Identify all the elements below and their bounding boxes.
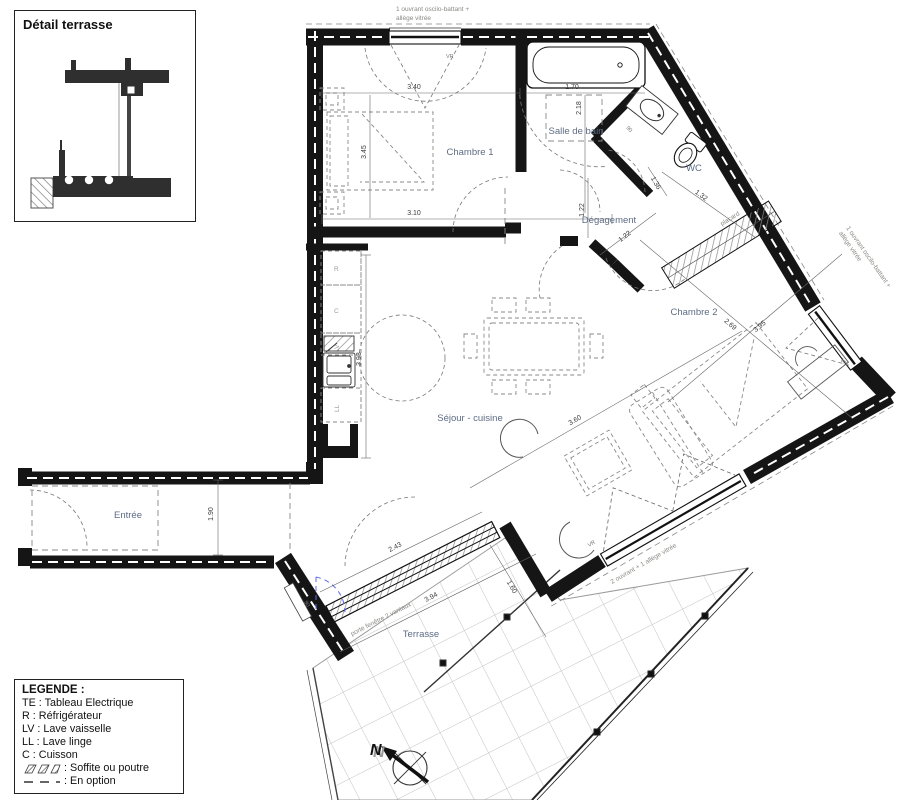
annotation-top-1: 1 ouvrant oscilo-battant + — [396, 6, 469, 13]
room-label-degagement: Dégagement — [582, 215, 637, 226]
window-sejour: VR — [575, 430, 746, 566]
dim-wc-door: 90 — [625, 125, 634, 134]
vr-label-top: VR — [446, 54, 454, 60]
room-label-chambre1: Chambre 1 — [447, 147, 494, 158]
legend-soffite-label: : Soffite ou poutre — [64, 762, 149, 775]
annotation-top-2: allège vitrée — [396, 15, 431, 22]
appliance-label-c: C — [334, 308, 339, 315]
dim-sejour-d: 3.60 — [568, 414, 583, 427]
room-label-wc: WC — [686, 163, 702, 174]
terrace-detail-drawing — [15, 32, 195, 214]
dim-bath-width: 1.70 — [565, 84, 579, 91]
room-label-sejour: Séjour - cuisine — [437, 413, 502, 424]
appliance-label-ll: LL — [334, 404, 341, 412]
placard-closet: placard — [662, 201, 782, 288]
legend-item-ll: LL : Lave linge — [22, 736, 177, 749]
legend-item-option: : En option — [22, 775, 177, 788]
kitchen-sink — [323, 336, 355, 387]
legend-item-soffite: : Soffite ou poutre — [22, 762, 177, 775]
sofa — [627, 385, 715, 490]
inset-title: Détail terrasse — [15, 11, 195, 32]
furniture — [320, 88, 808, 496]
legend-option-label: : En option — [64, 775, 116, 788]
legend-item-te: TE : Tableau Electrique — [22, 697, 177, 710]
legend-item-lv: LV : Lave vaisselle — [22, 723, 177, 736]
roof-overhang-lines — [306, 24, 893, 608]
armchair-1 — [500, 419, 538, 457]
coffee-table — [564, 430, 632, 496]
room-label-entree: Entrée — [114, 510, 142, 521]
vr-label-sejour: VR — [587, 540, 597, 549]
room-label-sdb: Salle de bain — [549, 126, 604, 137]
chambre1-door-arc — [453, 177, 508, 232]
dim-entree-h: 1.90 — [208, 507, 215, 521]
option-symbol — [22, 777, 62, 787]
legend-item-c: C : Cuisson — [22, 749, 177, 762]
bathtub — [527, 42, 645, 88]
kitchen-counter: R C LV LL — [321, 251, 361, 422]
dim-ch1-height: 3.45 — [361, 145, 368, 159]
detail-section — [31, 58, 171, 208]
sejour-turning-circle — [359, 315, 445, 401]
dim-bath-height: 2.18 — [576, 101, 583, 115]
entree-door-arc — [30, 490, 87, 548]
floor-plan-page: { "detail_inset": { "title": "Détail ter… — [0, 0, 916, 800]
interior-walls — [306, 30, 650, 458]
room-label-chambre2: Chambre 2 — [671, 307, 718, 318]
soffite-symbol — [22, 763, 62, 775]
legend-box: LEGENDE : TE : Tableau Electrique R : Ré… — [14, 679, 184, 794]
sejour-terrace-door-arc — [345, 497, 415, 566]
armchair-2 — [560, 522, 594, 558]
room-label-terrasse: Terrasse — [403, 629, 439, 640]
north-label: N — [370, 742, 382, 759]
degagement-arc — [539, 246, 562, 298]
dim-wc-b: 1.32 — [693, 189, 708, 203]
cooktop — [321, 285, 361, 333]
bed-chambre1 — [320, 88, 433, 214]
legend-title: LEGENDE : — [22, 684, 177, 696]
annotation-right-1: 1 ouvrant oscilo-battant + — [844, 225, 892, 289]
washing-machine — [321, 388, 361, 422]
dim-ch2-b: 3.95 — [753, 320, 768, 334]
dining-table — [464, 298, 603, 394]
terrace-detail-inset: Détail terrasse — [14, 10, 196, 222]
dim-ch1-width: 3.40 — [407, 84, 421, 91]
terrace-tiles — [180, 470, 820, 800]
dim-kitchen-h: 3.93 — [356, 352, 363, 366]
window-right: VR — [786, 306, 862, 370]
appliance-label-r: R — [334, 266, 339, 273]
legend-item-r: R : Réfrigérateur — [22, 710, 177, 723]
fridge — [321, 251, 361, 285]
dim-ch1-bottom: 3.10 — [407, 210, 421, 217]
terrace — [180, 470, 820, 800]
